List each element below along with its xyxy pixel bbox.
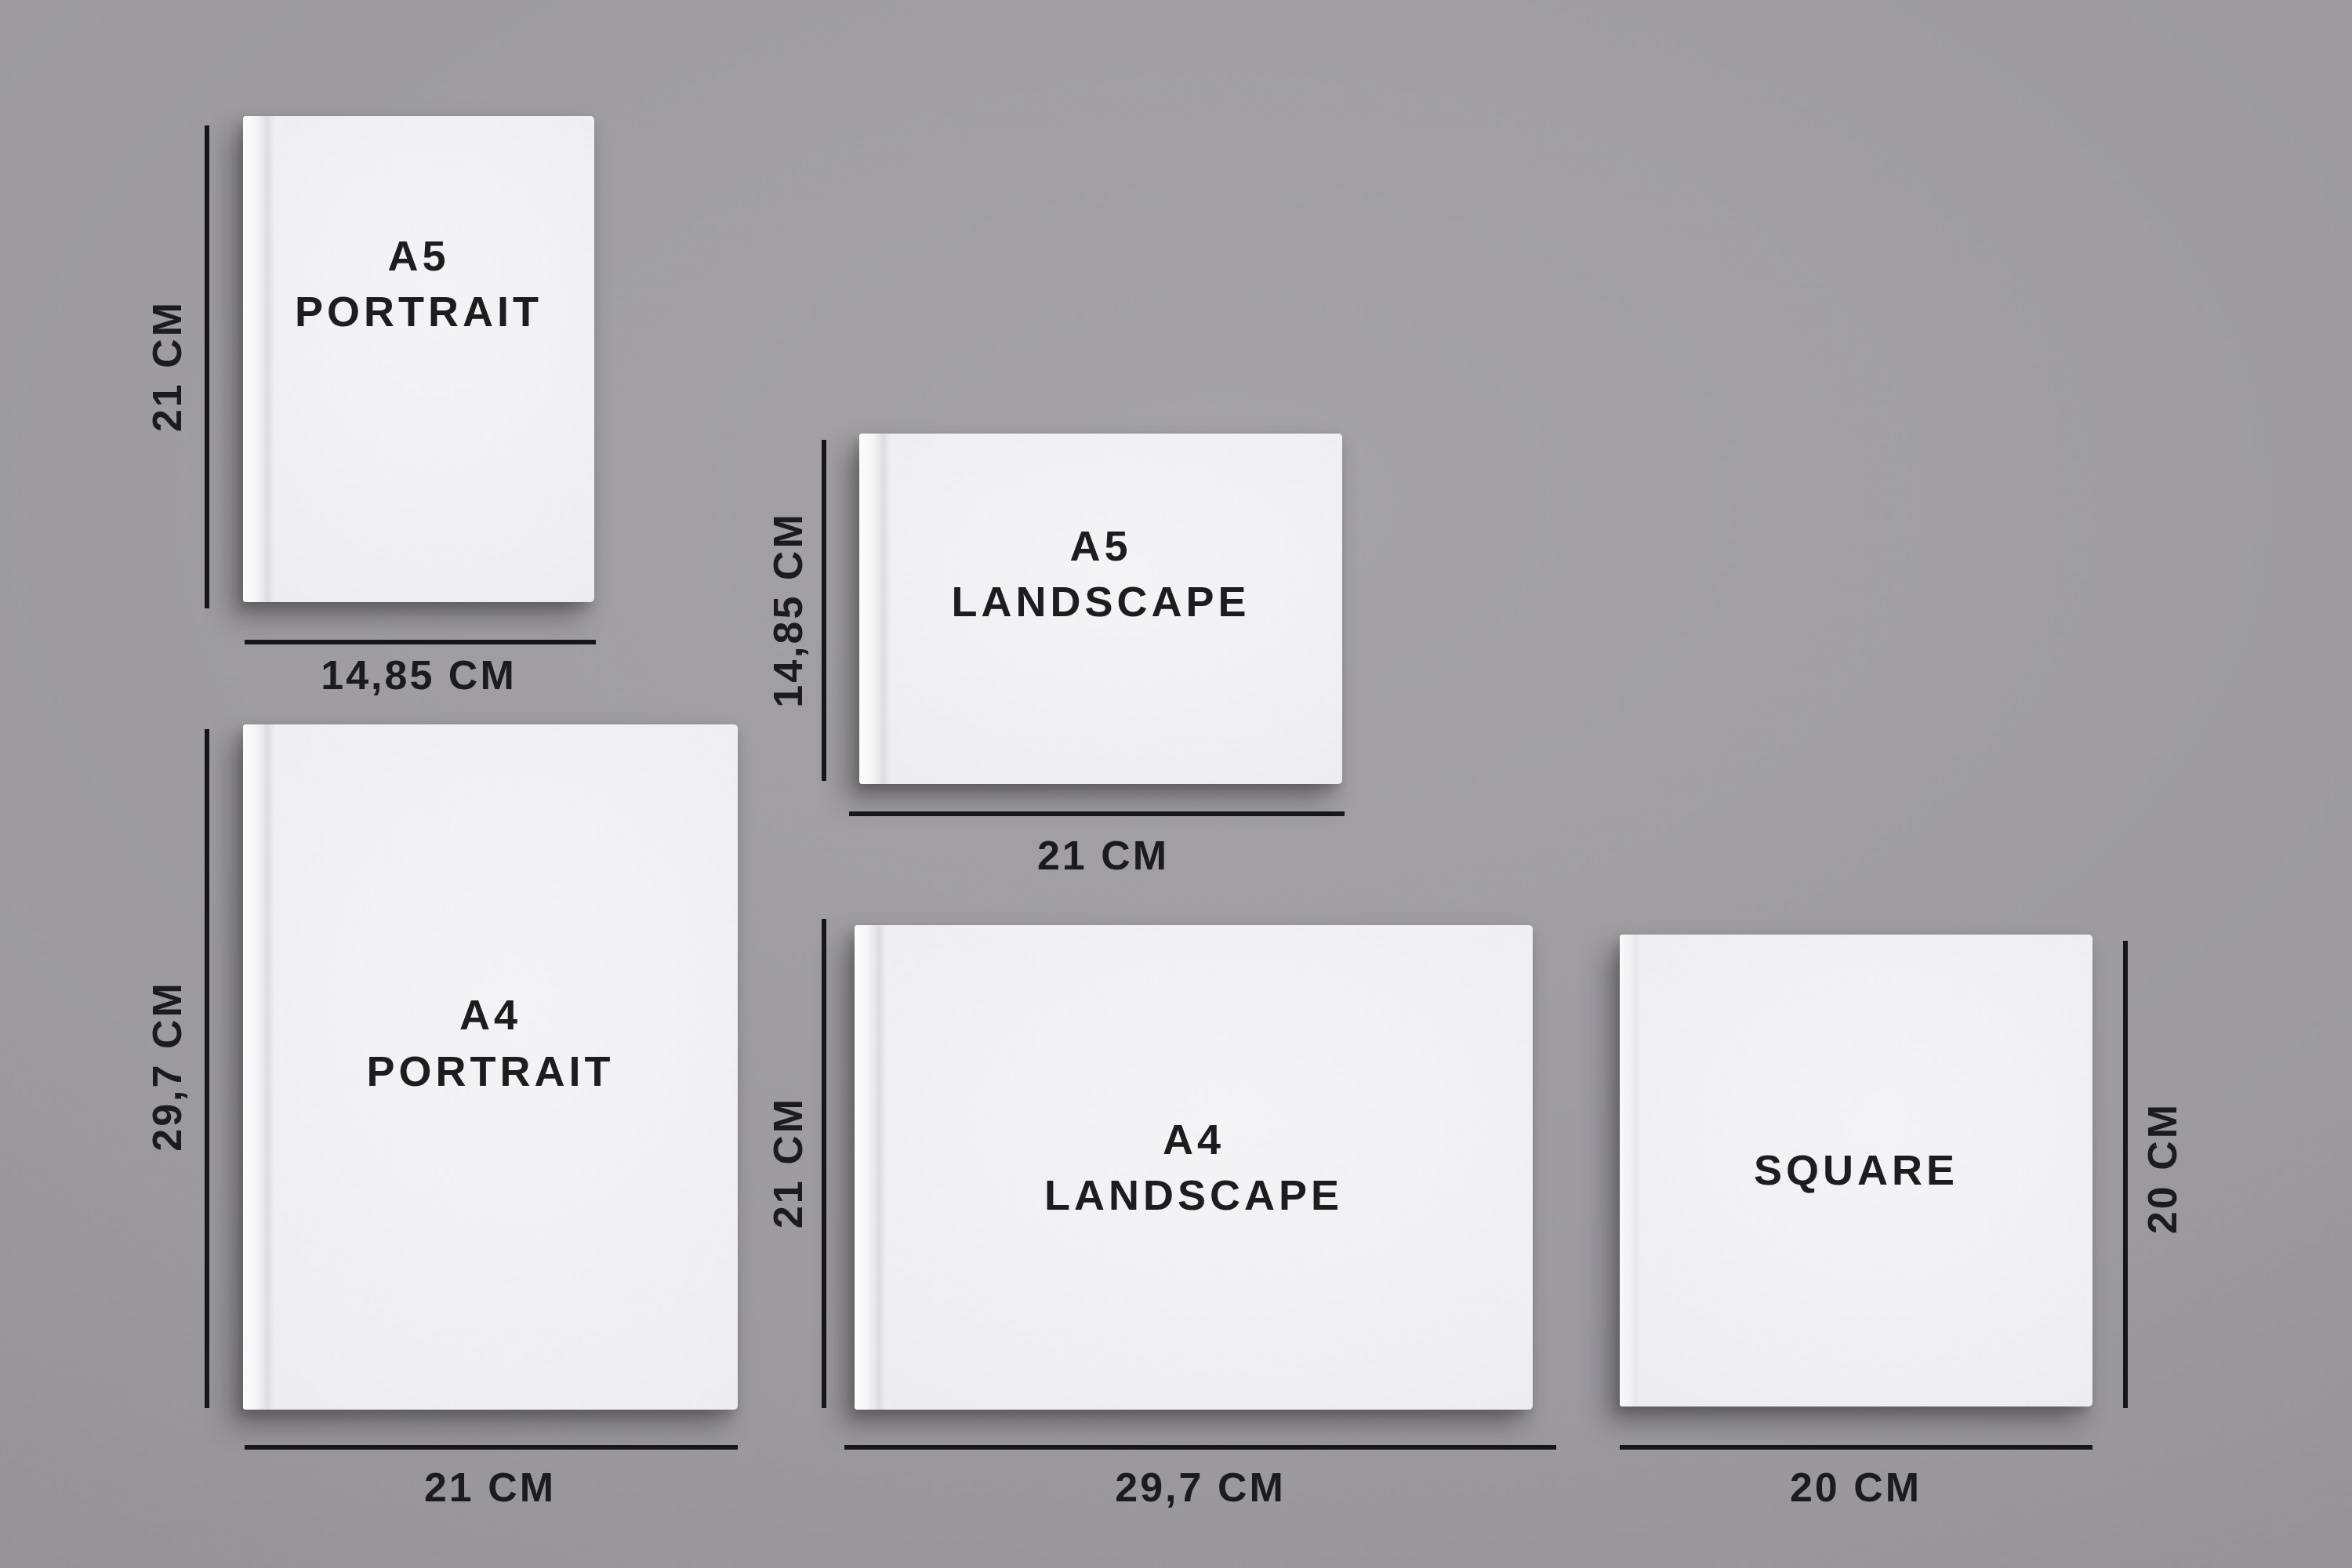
book-cover-a5-portrait: A5 PORTRAIT [243, 116, 594, 602]
height-dimension-label: 21 CM [757, 967, 819, 1359]
height-dimension-line [822, 919, 826, 1408]
book-title-line1: A5 [243, 228, 594, 284]
height-dimension-line [822, 440, 826, 781]
width-dimension-label: 14,85 CM [262, 649, 575, 701]
width-dimension-line [245, 1445, 738, 1450]
book-cover-a4-portrait: A4 PORTRAIT [243, 724, 738, 1410]
height-dimension-label: 14,85 CM [757, 414, 819, 806]
book-title-line1: A5 [859, 518, 1342, 574]
book-title: A5 PORTRAIT [243, 228, 594, 340]
width-dimension-label: 29,7 CM [1044, 1461, 1357, 1513]
width-dimension-line [1620, 1445, 2092, 1450]
width-dimension-label: 20 CM [1699, 1461, 2013, 1513]
book-spine [243, 116, 274, 602]
book-title-line1: SQUARE [1620, 1142, 2092, 1198]
book-title-line1: A4 [243, 987, 738, 1043]
height-dimension-label: 20 CM [2131, 972, 2194, 1364]
width-dimension-line [844, 1445, 1556, 1450]
width-dimension-label: 21 CM [333, 1461, 647, 1513]
width-dimension-line [849, 811, 1345, 816]
book-title: A5 LANDSCAPE [859, 518, 1342, 630]
height-dimension-line [205, 729, 209, 1408]
book-title-line2: PORTRAIT [243, 1043, 738, 1098]
width-dimension-label: 21 CM [946, 829, 1260, 881]
book-title: A4 LANDSCAPE [855, 1112, 1533, 1224]
book-cover-a4-landscape: A4 LANDSCAPE [855, 925, 1533, 1410]
book-title-line2: LANDSCAPE [859, 574, 1342, 630]
book-cover-a5-landscape: A5 LANDSCAPE [859, 434, 1342, 784]
book-title-line1: A4 [855, 1112, 1533, 1167]
width-dimension-line [245, 640, 596, 644]
height-dimension-line [205, 125, 209, 608]
size-comparison-canvas: { "canvas": { "background_color": "#9a98… [0, 0, 2352, 1568]
book-cover-square: SQUARE [1620, 935, 2092, 1406]
height-dimension-line [2123, 941, 2128, 1408]
book-title-line2: LANDSCAPE [855, 1167, 1533, 1223]
book-title-line2: PORTRAIT [243, 284, 594, 339]
height-dimension-label: 29,7 CM [136, 870, 198, 1262]
book-title: SQUARE [1620, 1142, 2092, 1198]
book-title: A4 PORTRAIT [243, 987, 738, 1099]
height-dimension-label: 21 CM [136, 170, 198, 562]
